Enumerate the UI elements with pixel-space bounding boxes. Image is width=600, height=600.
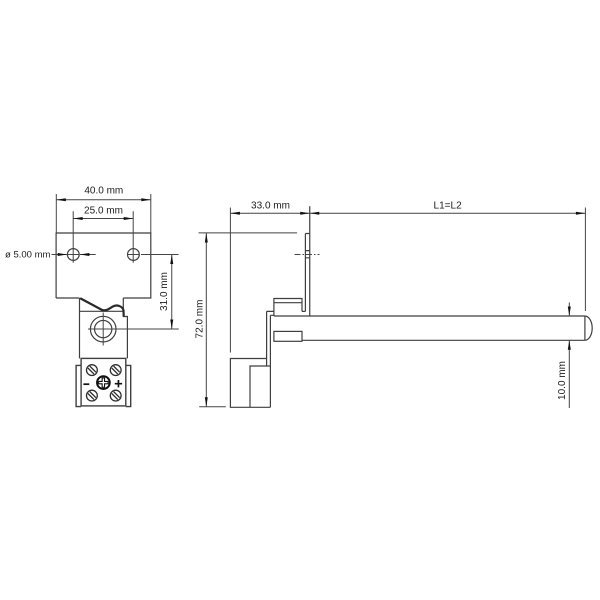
svg-text:33.0 mm: 33.0 mm [251,201,290,212]
svg-text:40.0 mm: 40.0 mm [84,186,123,197]
svg-text:L1=L2: L1=L2 [434,201,463,212]
svg-text:ø 5.00 mm: ø 5.00 mm [5,250,50,261]
svg-text:10.0 mm: 10.0 mm [557,361,568,400]
svg-text:72.0 mm: 72.0 mm [195,300,206,339]
svg-text:31.0 mm: 31.0 mm [159,272,170,311]
svg-text:25.0 mm: 25.0 mm [84,205,123,216]
